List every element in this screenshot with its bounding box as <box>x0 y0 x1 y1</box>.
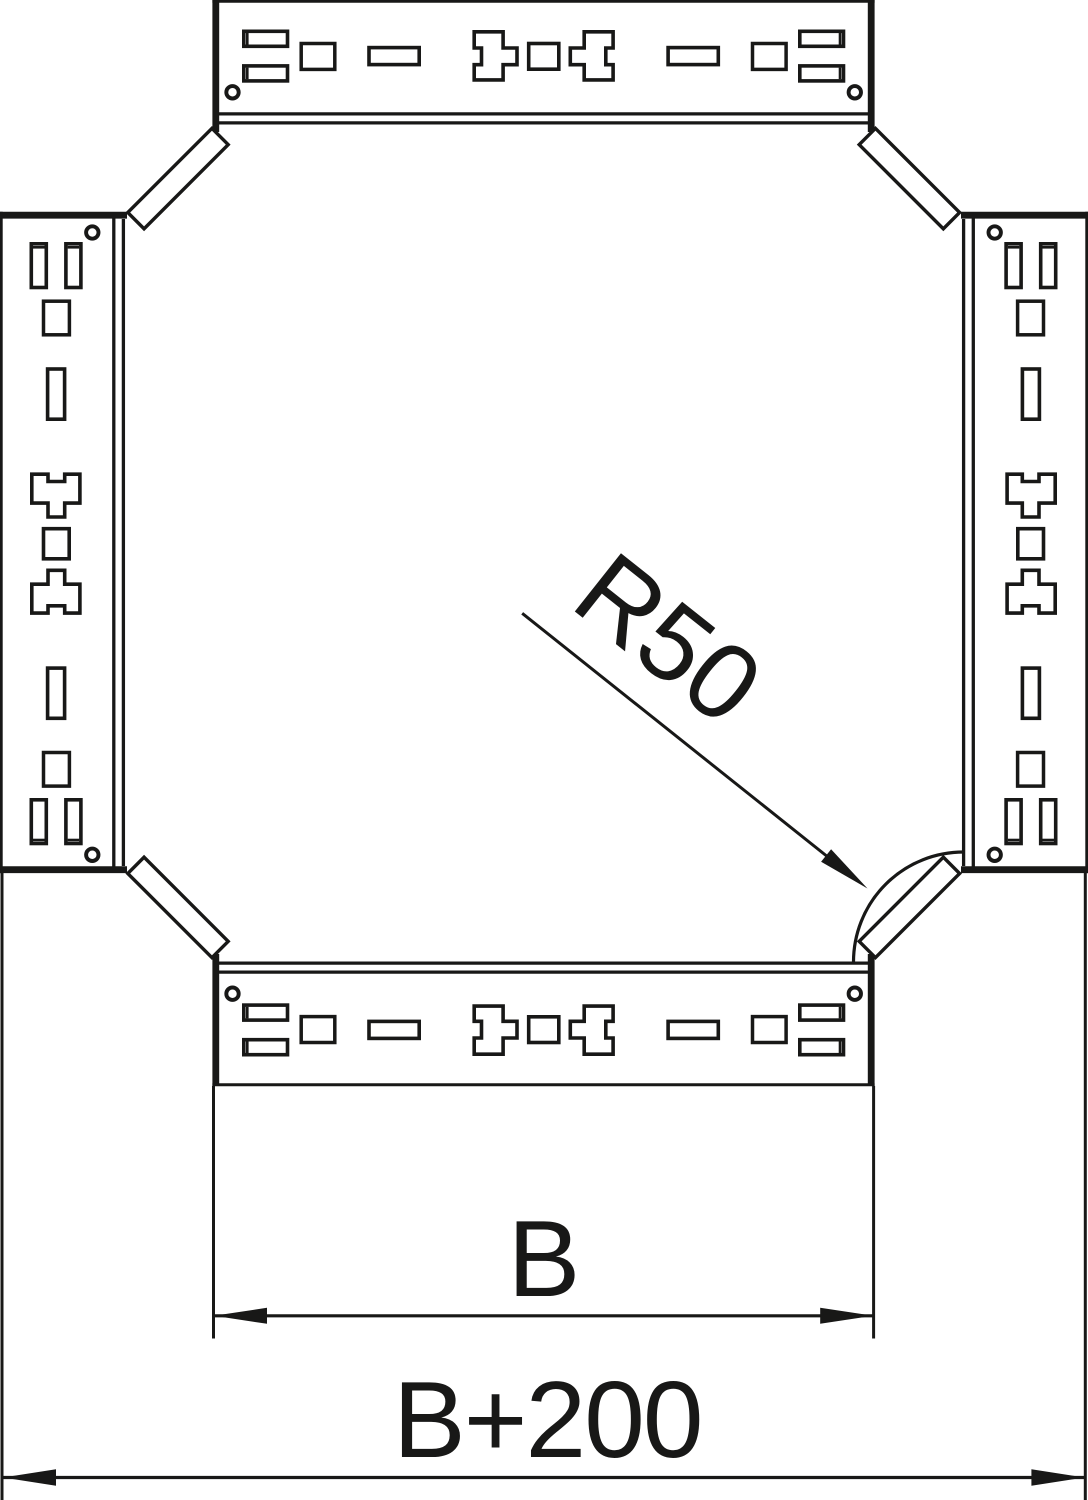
svg-text:B+200: B+200 <box>393 1359 702 1481</box>
svg-text:B: B <box>508 1198 581 1320</box>
